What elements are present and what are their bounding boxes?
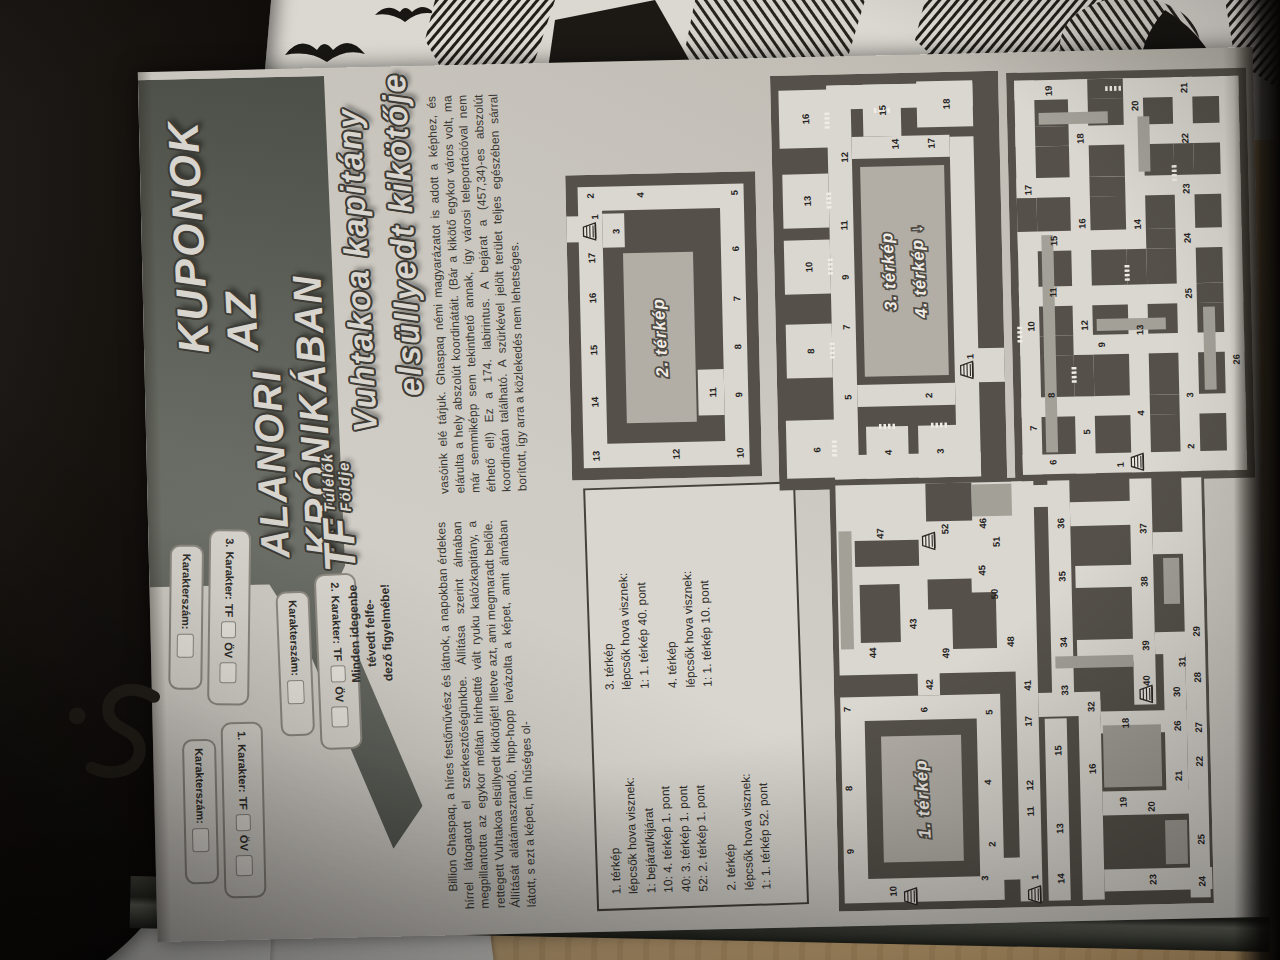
maze-wall bbox=[860, 584, 901, 643]
map-point-9: 9 bbox=[1097, 342, 1107, 347]
map-point-36: 36 bbox=[1055, 518, 1066, 529]
map-point-45: 45 bbox=[976, 564, 987, 576]
main-title-line2: elsüllyedt kikötője bbox=[375, 71, 430, 397]
coupon-row2: Karakterszám: bbox=[168, 545, 204, 690]
map-point-15: 15 bbox=[877, 104, 888, 116]
maze-wall bbox=[927, 578, 972, 609]
map-point-14: 14 bbox=[589, 396, 600, 408]
map-point-24: 24 bbox=[1196, 875, 1207, 887]
body-text-2: vasóink elé tárjuk. Ghaspaq némi magyará… bbox=[424, 94, 529, 494]
maze-corridor bbox=[857, 383, 955, 407]
notice-line2: dező figyelmébe! bbox=[378, 584, 396, 682]
mud-patch bbox=[1103, 724, 1162, 787]
main-title-line1: Vuhtakoa kapitány bbox=[330, 107, 386, 434]
map-point-15: 15 bbox=[1049, 236, 1059, 247]
maze-corridor bbox=[974, 348, 1005, 383]
map-point-4: 4 bbox=[635, 191, 646, 197]
map-point-23: 23 bbox=[1147, 874, 1158, 885]
photo-scene: KUPONOK AZ ALANORI KRÓNIKÁBAN 1.Karakter… bbox=[0, 0, 1280, 960]
map-point-38: 38 bbox=[1138, 576, 1149, 587]
map-point-5: 5 bbox=[1082, 429, 1092, 434]
map-point-8: 8 bbox=[1047, 392, 1057, 397]
mud-patch bbox=[1165, 820, 1188, 864]
coupon-number: 1. bbox=[236, 731, 248, 740]
map-point-3: 3 bbox=[1185, 392, 1195, 397]
maze-corridor bbox=[1070, 501, 1133, 526]
map-point-7: 7 bbox=[841, 324, 852, 330]
coupon-karakter-label: Karakter: bbox=[330, 595, 344, 644]
handwritten-dot bbox=[69, 708, 86, 725]
map-point-27: 27 bbox=[1193, 722, 1204, 733]
map-point-9: 9 bbox=[840, 274, 851, 280]
map-point-12: 12 bbox=[1080, 320, 1090, 331]
coupon-ov-label: ÖV bbox=[223, 642, 235, 658]
map-point-18: 18 bbox=[941, 99, 952, 110]
mud-patch bbox=[1163, 558, 1180, 604]
map-point-34: 34 bbox=[1058, 636, 1069, 648]
map-point-52: 52 bbox=[939, 524, 950, 535]
map-point-7: 7 bbox=[841, 707, 852, 713]
map-point-7: 7 bbox=[1029, 425, 1039, 430]
map4-svg: 1234567891011121314151617181920212223242… bbox=[1006, 65, 1255, 485]
map-point-2: 2 bbox=[923, 393, 934, 399]
map-point-16: 16 bbox=[1087, 763, 1098, 774]
map-point-37: 37 bbox=[1137, 523, 1148, 534]
map-point-26: 26 bbox=[1172, 720, 1183, 731]
mud-patch bbox=[1055, 655, 1133, 669]
map-point-48: 48 bbox=[1005, 636, 1016, 647]
map-point-21: 21 bbox=[1173, 770, 1184, 782]
map-point-15: 15 bbox=[588, 344, 599, 356]
map-point-44: 44 bbox=[867, 647, 878, 659]
coupon-ov-box bbox=[331, 706, 349, 728]
map-point-3: 3 bbox=[979, 875, 990, 881]
maze-wall bbox=[1087, 78, 1123, 99]
map-point-31: 31 bbox=[1176, 656, 1187, 668]
map-point-22: 22 bbox=[1180, 133, 1190, 144]
map-point-50: 50 bbox=[989, 589, 1000, 600]
maze-wall bbox=[925, 482, 972, 521]
map-point-29: 29 bbox=[1191, 626, 1202, 637]
map-point-20: 20 bbox=[1146, 801, 1157, 812]
coupon-row1: 3.Karakter:TFÖV bbox=[207, 529, 251, 706]
map-point-21: 21 bbox=[1179, 83, 1189, 94]
map-point-16: 16 bbox=[587, 293, 598, 304]
coupon-number: 3. bbox=[224, 538, 236, 547]
map-point-49: 49 bbox=[940, 648, 951, 659]
map-point-16: 16 bbox=[1077, 218, 1087, 229]
maze-wall bbox=[1035, 126, 1069, 147]
mud-patch bbox=[1097, 317, 1166, 330]
map-point-9: 9 bbox=[845, 849, 856, 855]
map-point-2: 2 bbox=[1186, 444, 1196, 449]
coupon-row2: Karakterszám: bbox=[275, 590, 315, 736]
map-point-10: 10 bbox=[1026, 321, 1036, 332]
map-point-2: 2 bbox=[585, 193, 596, 199]
maze-map-2: 2. térkép1314151617123456789101112 bbox=[565, 171, 762, 480]
brand-logo: TF Túlélők Földje bbox=[313, 441, 363, 573]
map-point-11: 11 bbox=[1025, 805, 1036, 816]
map-point-17: 17 bbox=[1023, 185, 1033, 196]
map-point-6: 6 bbox=[811, 447, 822, 453]
map-point-25: 25 bbox=[1195, 833, 1206, 845]
maze-wall bbox=[1074, 355, 1095, 397]
coupon-karakterszam-label: Karakterszám: bbox=[180, 554, 193, 630]
maze-wall bbox=[855, 540, 920, 567]
body-text-1: Billion Ghaspaq, a híres festőművész és … bbox=[434, 520, 539, 910]
map-point-13: 13 bbox=[802, 196, 813, 207]
maze-wall bbox=[1150, 394, 1180, 414]
coupon-ov-box bbox=[236, 855, 253, 876]
map-point-13: 13 bbox=[590, 451, 601, 462]
desk-shadow-right bbox=[1234, 0, 1280, 960]
map-point-5: 5 bbox=[983, 709, 994, 715]
maze-wall bbox=[1089, 176, 1125, 197]
coupon-ov-label: ÖV bbox=[333, 686, 346, 702]
map-point-12: 12 bbox=[670, 449, 681, 460]
maze-map-4: 1234567891011121314151617181920212223242… bbox=[1006, 65, 1255, 485]
map-point-17: 17 bbox=[586, 253, 597, 264]
map-point-40: 40 bbox=[1141, 675, 1152, 686]
maze-corridor bbox=[1152, 532, 1184, 555]
mud-patch bbox=[971, 483, 1016, 516]
map-point-6: 6 bbox=[918, 707, 929, 713]
handwritten-stroke bbox=[92, 690, 154, 772]
map-point-4: 4 bbox=[883, 449, 894, 455]
coupon-karakter-label: Karakter: bbox=[236, 744, 249, 793]
map-point-13: 13 bbox=[1135, 325, 1145, 336]
legend-group: 1. térképlépcsők hova visznek:1: bejárat… bbox=[602, 705, 712, 895]
maze-central-room bbox=[860, 165, 949, 377]
coupon-ov-box bbox=[220, 662, 237, 683]
coupon-tf-label: TF bbox=[237, 796, 249, 810]
map-point-14: 14 bbox=[889, 138, 900, 150]
mud-patch bbox=[1203, 306, 1217, 389]
map-point-17: 17 bbox=[925, 138, 936, 149]
map-point-11: 11 bbox=[1048, 287, 1058, 297]
map-point-18: 18 bbox=[1120, 718, 1131, 729]
coupon-tf-label: TF bbox=[223, 604, 235, 618]
coupon-tf-box bbox=[331, 665, 347, 683]
map-point-11: 11 bbox=[838, 219, 849, 230]
map-point-8: 8 bbox=[843, 786, 854, 792]
coupon-row1: 1.Karakter:TFÖV bbox=[221, 722, 267, 899]
map-point-13: 13 bbox=[1054, 823, 1065, 834]
coupon-karakterszam-label: Karakterszám: bbox=[287, 600, 302, 676]
maze-corridor bbox=[1075, 565, 1133, 588]
map-point-22: 22 bbox=[1194, 756, 1205, 767]
map-point-11: 11 bbox=[707, 386, 718, 397]
map-point-1: 1 bbox=[1116, 462, 1126, 467]
coupon-number-box bbox=[177, 633, 194, 657]
map-point-8: 8 bbox=[732, 344, 743, 350]
magazine-page: KUPONOK AZ ALANORI KRÓNIKÁBAN 1.Karakter… bbox=[138, 47, 1272, 942]
handwritten-note: 5. bbox=[58, 680, 178, 800]
map-point-43: 43 bbox=[907, 618, 918, 629]
maze-corridor bbox=[1155, 632, 1187, 655]
coupon-ov-label: ÖV bbox=[238, 835, 250, 851]
map-point-8: 8 bbox=[805, 348, 816, 354]
coupon-number-box bbox=[287, 680, 305, 705]
mud-patch bbox=[838, 531, 854, 649]
legend-box: 1. térképlépcsők hova visznek:1: bejárat… bbox=[583, 481, 809, 911]
map-point-2: 2 bbox=[986, 841, 997, 847]
map-point-1: 1 bbox=[1029, 874, 1040, 880]
coupon-karakterszam-label: Karakterszám: bbox=[193, 748, 207, 824]
map1-svg: 1. térkép1234567891011121314151617181920… bbox=[829, 473, 1214, 911]
legend-group: 2. térképlépcsők hova visznek:1: 1. térk… bbox=[718, 703, 776, 891]
body-column-2: vasóink elé tárjuk. Ghaspaq némi magyará… bbox=[424, 93, 531, 494]
map-point-19: 19 bbox=[1117, 797, 1128, 808]
maze-wall bbox=[1017, 198, 1038, 232]
legend-group: 3. térképlépcsők hova visznek:1: 1. térk… bbox=[596, 502, 654, 690]
map-point-32: 32 bbox=[1085, 701, 1096, 712]
coupon-tf-label: TF bbox=[332, 648, 345, 662]
map-point-46: 46 bbox=[977, 518, 988, 529]
mud-patch bbox=[1039, 111, 1108, 124]
map-point-33: 33 bbox=[1059, 685, 1070, 696]
mud-patch bbox=[1137, 116, 1150, 172]
notice-text: Minden idegenbe tévedt felfe- dező figye… bbox=[344, 572, 397, 694]
coupon-tf-box bbox=[221, 621, 236, 638]
brand-name-line2: Földje bbox=[334, 461, 353, 512]
map-point-1: 1 bbox=[589, 213, 600, 219]
legend-column-1: 1. térképlépcsők hova visznek:1: bejárat… bbox=[602, 702, 796, 895]
maze-corridor bbox=[566, 216, 583, 242]
coupon-tf-box bbox=[236, 814, 251, 831]
map-point-28: 28 bbox=[1192, 672, 1203, 683]
map-point-10: 10 bbox=[887, 886, 898, 897]
map-point-5: 5 bbox=[842, 394, 853, 400]
coupon-number-box bbox=[192, 828, 210, 852]
map-point-24: 24 bbox=[1182, 232, 1192, 243]
map-point-4: 4 bbox=[982, 779, 993, 785]
map-point-47: 47 bbox=[874, 528, 885, 539]
maze-map-1: 1. térkép1234567891011121314151617181920… bbox=[829, 473, 1214, 911]
coupon-3: 3.Karakter:TFÖVKarakterszám: bbox=[153, 528, 251, 705]
map-point-41: 41 bbox=[1022, 679, 1033, 691]
map-point-9: 9 bbox=[733, 392, 744, 398]
body-column-1: Billion Ghaspaq, a híres festőművész és … bbox=[434, 519, 540, 910]
coupon-karakter-label: Karakter: bbox=[223, 551, 236, 599]
map-point-39: 39 bbox=[1140, 640, 1151, 651]
map-point-1: 1 bbox=[964, 353, 975, 359]
tf-monogram-icon: TF bbox=[316, 517, 363, 573]
maze-wall bbox=[1146, 228, 1176, 248]
coupon-1: 1.Karakter:TFÖVKarakterszám: bbox=[167, 722, 267, 900]
notice-line1: Minden idegenbe tévedt felfe- bbox=[346, 585, 379, 683]
brand-name: Túlélők Földje bbox=[319, 452, 355, 513]
map-point-17: 17 bbox=[1023, 716, 1034, 727]
maze-wall bbox=[1197, 283, 1224, 303]
map-point-25: 25 bbox=[1184, 288, 1194, 299]
map-point-3: 3 bbox=[935, 448, 946, 454]
maze-corridor bbox=[1078, 700, 1105, 900]
map-point-7: 7 bbox=[731, 296, 742, 302]
maze-map-3: 3. térkép4. térkép ↓57911126810131643211… bbox=[770, 71, 1007, 491]
map-point-19: 19 bbox=[1044, 86, 1054, 97]
map-point-16: 16 bbox=[800, 114, 811, 125]
map-point-20: 20 bbox=[1130, 100, 1140, 111]
coupon-number: 2. bbox=[329, 582, 341, 592]
coupon-row2: Karakterszám: bbox=[182, 739, 219, 884]
map-point-6: 6 bbox=[1048, 460, 1058, 465]
map-point-14: 14 bbox=[1133, 218, 1143, 229]
map-point-42: 42 bbox=[924, 679, 935, 690]
map-point-18: 18 bbox=[1075, 133, 1085, 144]
map-point-6: 6 bbox=[730, 246, 741, 252]
map-point-5: 5 bbox=[729, 189, 740, 195]
map-point-14: 14 bbox=[1055, 872, 1066, 884]
map-point-3: 3 bbox=[610, 229, 621, 235]
map-point-12: 12 bbox=[1024, 780, 1035, 791]
map-point-10: 10 bbox=[803, 262, 814, 273]
legend-column-2: 3. térképlépcsők hova visznek:1: 1. térk… bbox=[596, 498, 790, 691]
map-point-35: 35 bbox=[1056, 570, 1067, 582]
map-point-12: 12 bbox=[839, 152, 850, 163]
legend-group: 4. térképlépcsők hova visznek:1: 1. térk… bbox=[659, 500, 717, 688]
map3-svg: 3. térkép4. térkép ↓57911126810131643211… bbox=[770, 71, 1007, 491]
map-point-10: 10 bbox=[734, 447, 745, 458]
map-point-23: 23 bbox=[1181, 183, 1191, 194]
map-point-30: 30 bbox=[1171, 686, 1182, 697]
map-point-51: 51 bbox=[991, 536, 1002, 548]
map-point-15: 15 bbox=[1052, 744, 1063, 756]
map2-svg: 2. térkép1314151617123456789101112 bbox=[565, 171, 762, 480]
